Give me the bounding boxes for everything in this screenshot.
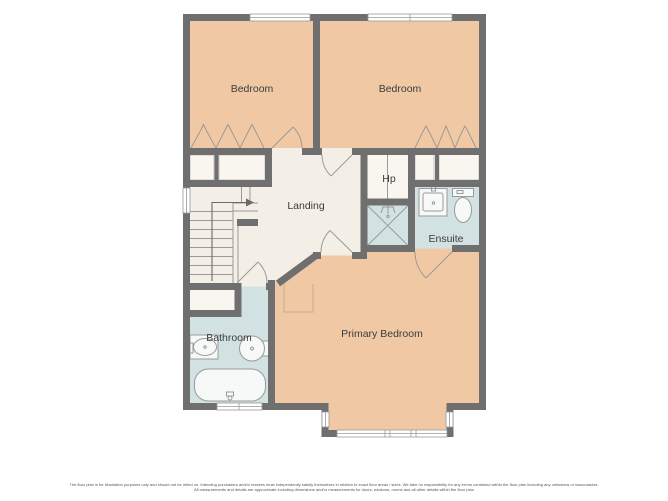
label-hot-press: Hp [382,173,396,185]
label-bedroom-1: Bedroom [231,83,274,95]
ensuite-sink-icon [419,186,447,216]
label-bathroom: Bathroom [206,332,252,344]
floor-plan-page: Bedroom Bedroom Landing Hp Ensuite Bathr… [0,0,668,501]
wardrobe-box [415,153,434,180]
window-bedroom-2 [368,14,452,21]
ensuite-toilet-icon [453,189,474,223]
stair-bulkhead [187,287,239,314]
label-ensuite: Ensuite [428,233,463,245]
label-bedroom-2: Bedroom [379,83,422,95]
wardrobe-box [219,155,265,180]
label-landing: Landing [287,200,325,212]
bathtub-icon [195,369,266,401]
window-bathroom [217,403,262,410]
wardrobe-box [439,153,479,180]
disclaimer-text: The floor plan is for illustration purpo… [0,482,668,492]
window-stairs [183,188,190,213]
wardrobe-box [190,155,214,180]
disclaimer-line-2: All measurements and details are approxi… [0,487,668,492]
floor-plan: Bedroom Bedroom Landing Hp Ensuite Bathr… [0,0,668,501]
window-bedroom-1 [250,14,310,21]
label-primary-bedroom: Primary Bedroom [341,328,423,340]
